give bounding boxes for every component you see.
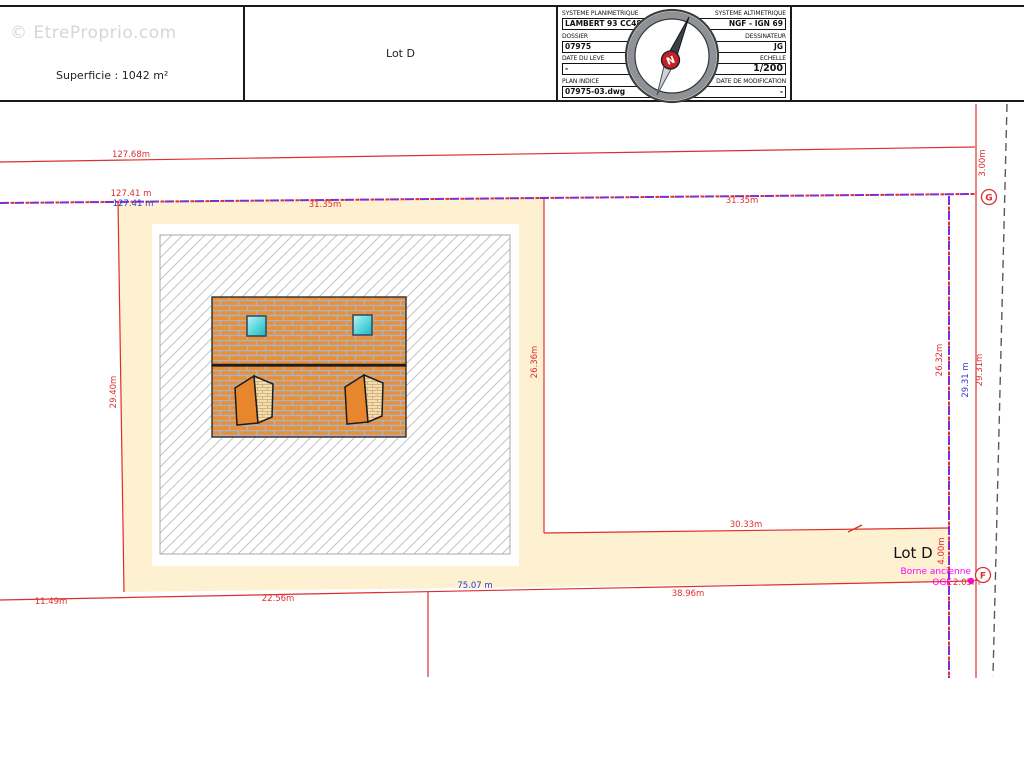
dim-right-blue: 29.31 m: [961, 362, 971, 397]
dim-top: 127.68m: [112, 150, 150, 160]
watermark: © EtreProprio.com: [10, 23, 177, 43]
lot-name-plan: Lot D: [893, 544, 932, 562]
building-roof: [212, 297, 406, 437]
roof-upper-slope: [212, 297, 406, 366]
dim-bottom-left: 11.49m: [35, 597, 68, 607]
dim-boundary-red: 127.41 m: [111, 189, 152, 199]
axis-dashed-line: [993, 104, 1007, 676]
dim-bottom-blue: 75.07 m: [457, 581, 492, 591]
title-block: SYSTEME PLANIMETRIQUE LAMBERT 93 CC48 SY…: [558, 7, 792, 100]
borne-note-dim: 2.05m: [953, 578, 980, 588]
dim-boundary-blue: 127.41 m: [113, 199, 154, 209]
dim-corridor-top: 30.33m: [730, 520, 763, 530]
dim-gap-right: 3.00m: [978, 149, 988, 176]
header-left-cell: © EtreProprio.com Superficie : 1042 m²: [0, 7, 245, 100]
dim-mid-side: 26.36m: [530, 346, 540, 379]
dim-seg-left: 31.35m: [309, 200, 342, 210]
site-plan: G F 127.68m 127.41 m 127.41 m 31.35m 31.…: [0, 0, 1024, 768]
lot-name-header: Lot D: [386, 47, 415, 60]
compass-rose-icon: N: [622, 6, 722, 106]
borne-note-line2: OGE: [932, 578, 952, 588]
area-label: Superficie : 1042 m²: [56, 69, 168, 82]
dim-right-red: 29.31m: [975, 354, 985, 387]
dim-seg-right: 31.35m: [726, 196, 759, 206]
skylight-right: [353, 315, 372, 335]
dim-right-purple: 26.32m: [935, 344, 945, 377]
header-empty-cell: [792, 7, 1024, 100]
dim-bottom-mid: 22.56m: [262, 594, 295, 604]
header-lot-cell: Lot D: [245, 7, 558, 100]
borne-note-line1: Borne ancienne: [901, 567, 972, 577]
marker-f-label: F: [980, 572, 986, 582]
skylight-left: [247, 316, 266, 336]
marker-g-label: G: [985, 194, 992, 204]
dim-left-side: 29.40m: [109, 376, 119, 409]
dim-corridor-width: 4.00m: [937, 537, 947, 564]
title-strip: © EtreProprio.com Superficie : 1042 m² L…: [0, 5, 1024, 102]
dim-bottom-right: 38.96m: [672, 589, 705, 599]
